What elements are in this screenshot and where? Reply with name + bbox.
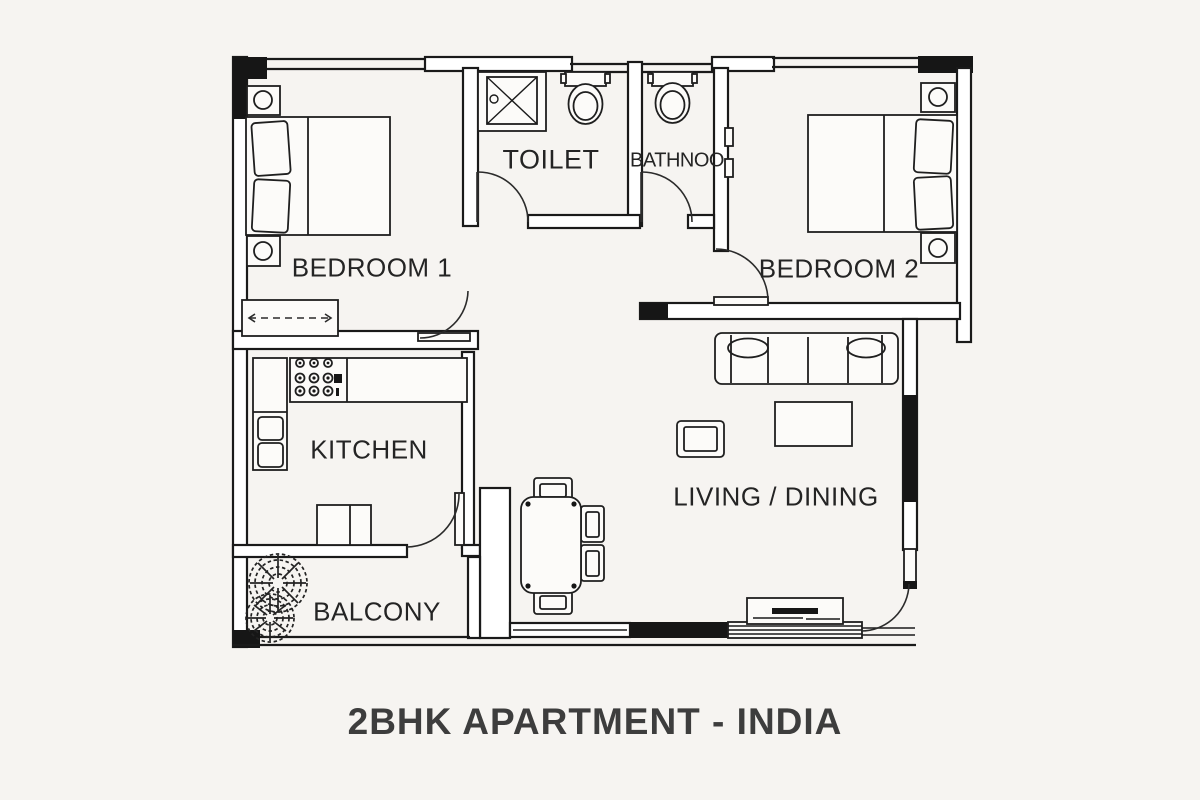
left-wall: [233, 57, 247, 647]
top-wall-toilet: [425, 57, 572, 71]
living-furniture: [677, 333, 898, 624]
wc-icon: [561, 72, 610, 124]
bedroom1-furniture: [242, 86, 390, 336]
floor-plan-drawing: [0, 0, 1200, 800]
toilet-bathroom-wall: [628, 62, 642, 226]
kitchen-bottom-wall: [233, 545, 407, 557]
living-bottom-solid: [630, 622, 730, 638]
kitchen-cabinet-icon: [317, 505, 371, 545]
bedroom1-toilet-wall: [463, 68, 478, 226]
door-arc-icon-entry: [861, 549, 917, 631]
living-right-window-solid: [903, 395, 917, 502]
bed-icon: [808, 115, 957, 232]
wc-icon: [648, 72, 697, 123]
nightstand-icon: [921, 233, 955, 263]
door-arc-icon-kitchen: [407, 493, 464, 547]
pillow-icon: [252, 179, 291, 233]
shower-tray-icon: [478, 72, 546, 131]
chair-icon: [581, 545, 604, 581]
toilet-bottom-wall: [528, 215, 640, 228]
nightstand-icon: [921, 83, 955, 112]
pillow-icon: [251, 121, 291, 176]
room-label-kitchen: KITCHEN: [310, 435, 428, 466]
room-label-toilet: TOILET: [502, 145, 599, 176]
bedroom2-furniture: [725, 83, 957, 263]
door-arc-icon-bathroom: [642, 172, 693, 222]
coffee-table-icon: [775, 402, 852, 446]
plant-icon: [246, 594, 294, 642]
pillow-icon: [914, 119, 954, 174]
plan-title: 2BHK APARTMENT - INDIA: [348, 701, 843, 743]
balcony-right-wall: [468, 557, 480, 638]
dining-table-icon: [521, 497, 581, 593]
wall-niche: [725, 128, 733, 146]
room-label-balcony: BALCONY: [313, 597, 441, 628]
floor-plan-page: BEDROOM 1 TOILET BATHNOO BEDROOM 2 KITCH…: [0, 0, 1200, 800]
sofa-icon: [715, 333, 898, 384]
room-label-living-dining: LIVING / DINING: [673, 482, 878, 513]
room-label-bedroom1: BEDROOM 1: [292, 253, 453, 284]
chair-icon: [534, 591, 572, 614]
chair-icon: [581, 506, 604, 542]
pillow-icon: [914, 176, 954, 230]
tv-unit-icon: [747, 598, 843, 624]
balcony-plants: [246, 554, 307, 642]
left-wall-solid-top: [233, 57, 247, 119]
toilet-fixtures: [478, 72, 610, 131]
armchair-icon: [677, 421, 724, 457]
door-arc-icon-toilet: [478, 172, 529, 222]
right-wall: [957, 68, 971, 342]
room-label-bathroom: BATHNOO: [630, 150, 724, 173]
bathroom-fixtures: [648, 72, 697, 123]
nightstand-icon: [247, 236, 280, 266]
door-arc-icon-bedroom1: [418, 291, 470, 341]
wall-stub: [480, 488, 510, 638]
nightstand-icon: [247, 86, 280, 115]
room-label-bedroom2: BEDROOM 2: [759, 254, 920, 285]
bedroom2-bottom-wall: [640, 303, 960, 319]
wall-niche: [725, 159, 733, 177]
wardrobe-icon: [242, 300, 338, 336]
door-jamb-block: [462, 545, 480, 556]
bed-icon: [246, 117, 390, 235]
dining-set: [521, 478, 604, 614]
bedroom2-bottom-wall-solid: [640, 303, 668, 319]
sink-icon: [253, 358, 287, 470]
